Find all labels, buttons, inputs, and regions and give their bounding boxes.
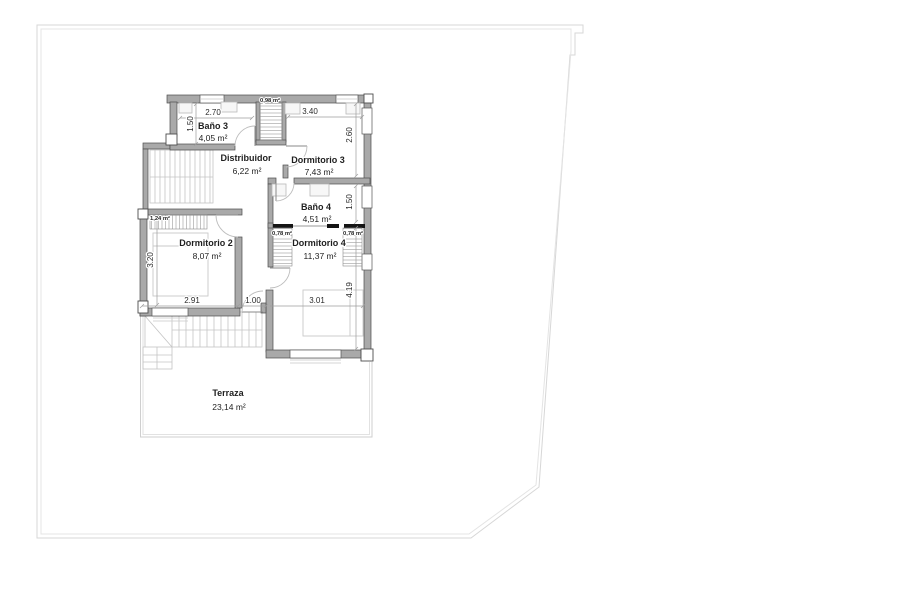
- sliding-door-bar-left: [273, 224, 293, 228]
- floor-plan-canvas: Baño 3 4,05 m² Distribuidor 6,22 m² Dorm…: [0, 0, 900, 600]
- window-dorm4-bottom: [290, 350, 341, 358]
- pillar-top-right: [364, 94, 373, 103]
- dim-dormitorio4-width: 3.01: [309, 296, 325, 305]
- window-dorm3-right: [362, 108, 372, 134]
- wall-closet-join: [268, 223, 273, 228]
- room-label-bano3: Baño 3: [198, 121, 228, 131]
- wall-dorm4-left: [266, 290, 273, 352]
- closet-top-hatch: [260, 102, 282, 140]
- bano3-sink: [221, 102, 237, 112]
- closet-top-label: 0,98 m²: [260, 97, 280, 104]
- wall-bano4-top: [294, 178, 370, 184]
- window-dorm2-bottom: [152, 308, 188, 316]
- dim-dormitorio2-height: 3.20: [146, 252, 155, 268]
- wall-closet098-bottom: [256, 140, 286, 145]
- sliding-door-bar-right: [344, 224, 365, 228]
- room-label-dormitorio4: Dormitorio 4: [292, 238, 346, 248]
- bano3-toilet: [179, 103, 192, 113]
- bano4-sink: [310, 184, 329, 196]
- window-bano4-right: [362, 186, 372, 208]
- stairs-upper: [150, 150, 213, 203]
- pillar-dorm2-top: [138, 209, 148, 219]
- door-dorm2: [216, 215, 238, 237]
- dim-dormitorio4-height: 4.19: [345, 282, 354, 298]
- closet-dorm4-left-label: 0,78 m²: [272, 230, 292, 237]
- wall-right: [364, 102, 371, 358]
- room-label-dormitorio2: Dormitorio 2: [179, 238, 233, 248]
- closet-dorm4-right-label: 0,78 m²: [343, 230, 363, 237]
- dim-bano3-width: 2.70: [205, 108, 221, 117]
- room-label-dormitorio3: Dormitorio 3: [291, 155, 345, 165]
- sliding-door-bar-mid: [327, 224, 339, 228]
- room-area-dormitorio2: 8,07 m²: [193, 251, 222, 261]
- closet-dorm2-label: 1,24 m²: [150, 215, 170, 222]
- dorm3-nightstand-left: [285, 103, 300, 114]
- dim-bano4-height: 1.50: [345, 194, 354, 210]
- pillar-bottom-right: [361, 349, 373, 361]
- door-bano3: [235, 126, 255, 146]
- dim-dormitorio3-height: 2.60: [345, 127, 354, 143]
- dim-hall-width: 1.00: [245, 296, 261, 305]
- room-label-terraza: Terraza: [212, 388, 244, 398]
- room-area-distribuidor: 6,22 m²: [233, 166, 262, 176]
- room-area-bano3: 4,05 m²: [199, 133, 228, 143]
- dorm3-nightstand-right: [346, 103, 360, 114]
- dim-dormitorio3-width: 3.40: [302, 107, 318, 116]
- room-label-distribuidor: Distribuidor: [221, 153, 272, 163]
- floor-plan-drawing: Baño 3 4,05 m² Distribuidor 6,22 m² Dorm…: [0, 0, 900, 600]
- room-area-bano4: 4,51 m²: [303, 214, 332, 224]
- wall-bano3-bottom: [170, 144, 235, 150]
- window-dorm4-right: [362, 254, 372, 270]
- wall-dorm2-right: [235, 237, 242, 308]
- room-area-dormitorio3: 7,43 m²: [305, 167, 334, 177]
- terrace-stairs: [143, 312, 262, 369]
- wall-closet098-left: [256, 102, 260, 142]
- door-dorm4: [270, 268, 290, 288]
- wall-stair-left: [143, 149, 148, 209]
- room-area-dormitorio4: 11,37 m²: [304, 251, 337, 261]
- dim-bano3-height: 1.50: [186, 116, 195, 132]
- pillar-dorm2-bottom: [138, 301, 148, 313]
- dim-dormitorio2-width: 2.91: [184, 296, 200, 305]
- room-area-terraza: 23,14 m²: [212, 402, 246, 412]
- wall-bano3-left: [170, 102, 177, 136]
- wall-bano4-top-left: [268, 178, 276, 184]
- room-label-bano4: Baño 4: [301, 202, 331, 212]
- bano4-toilet: [272, 184, 286, 196]
- pillar-bano3-corner: [166, 134, 177, 145]
- wall-dorm2-top: [140, 209, 242, 215]
